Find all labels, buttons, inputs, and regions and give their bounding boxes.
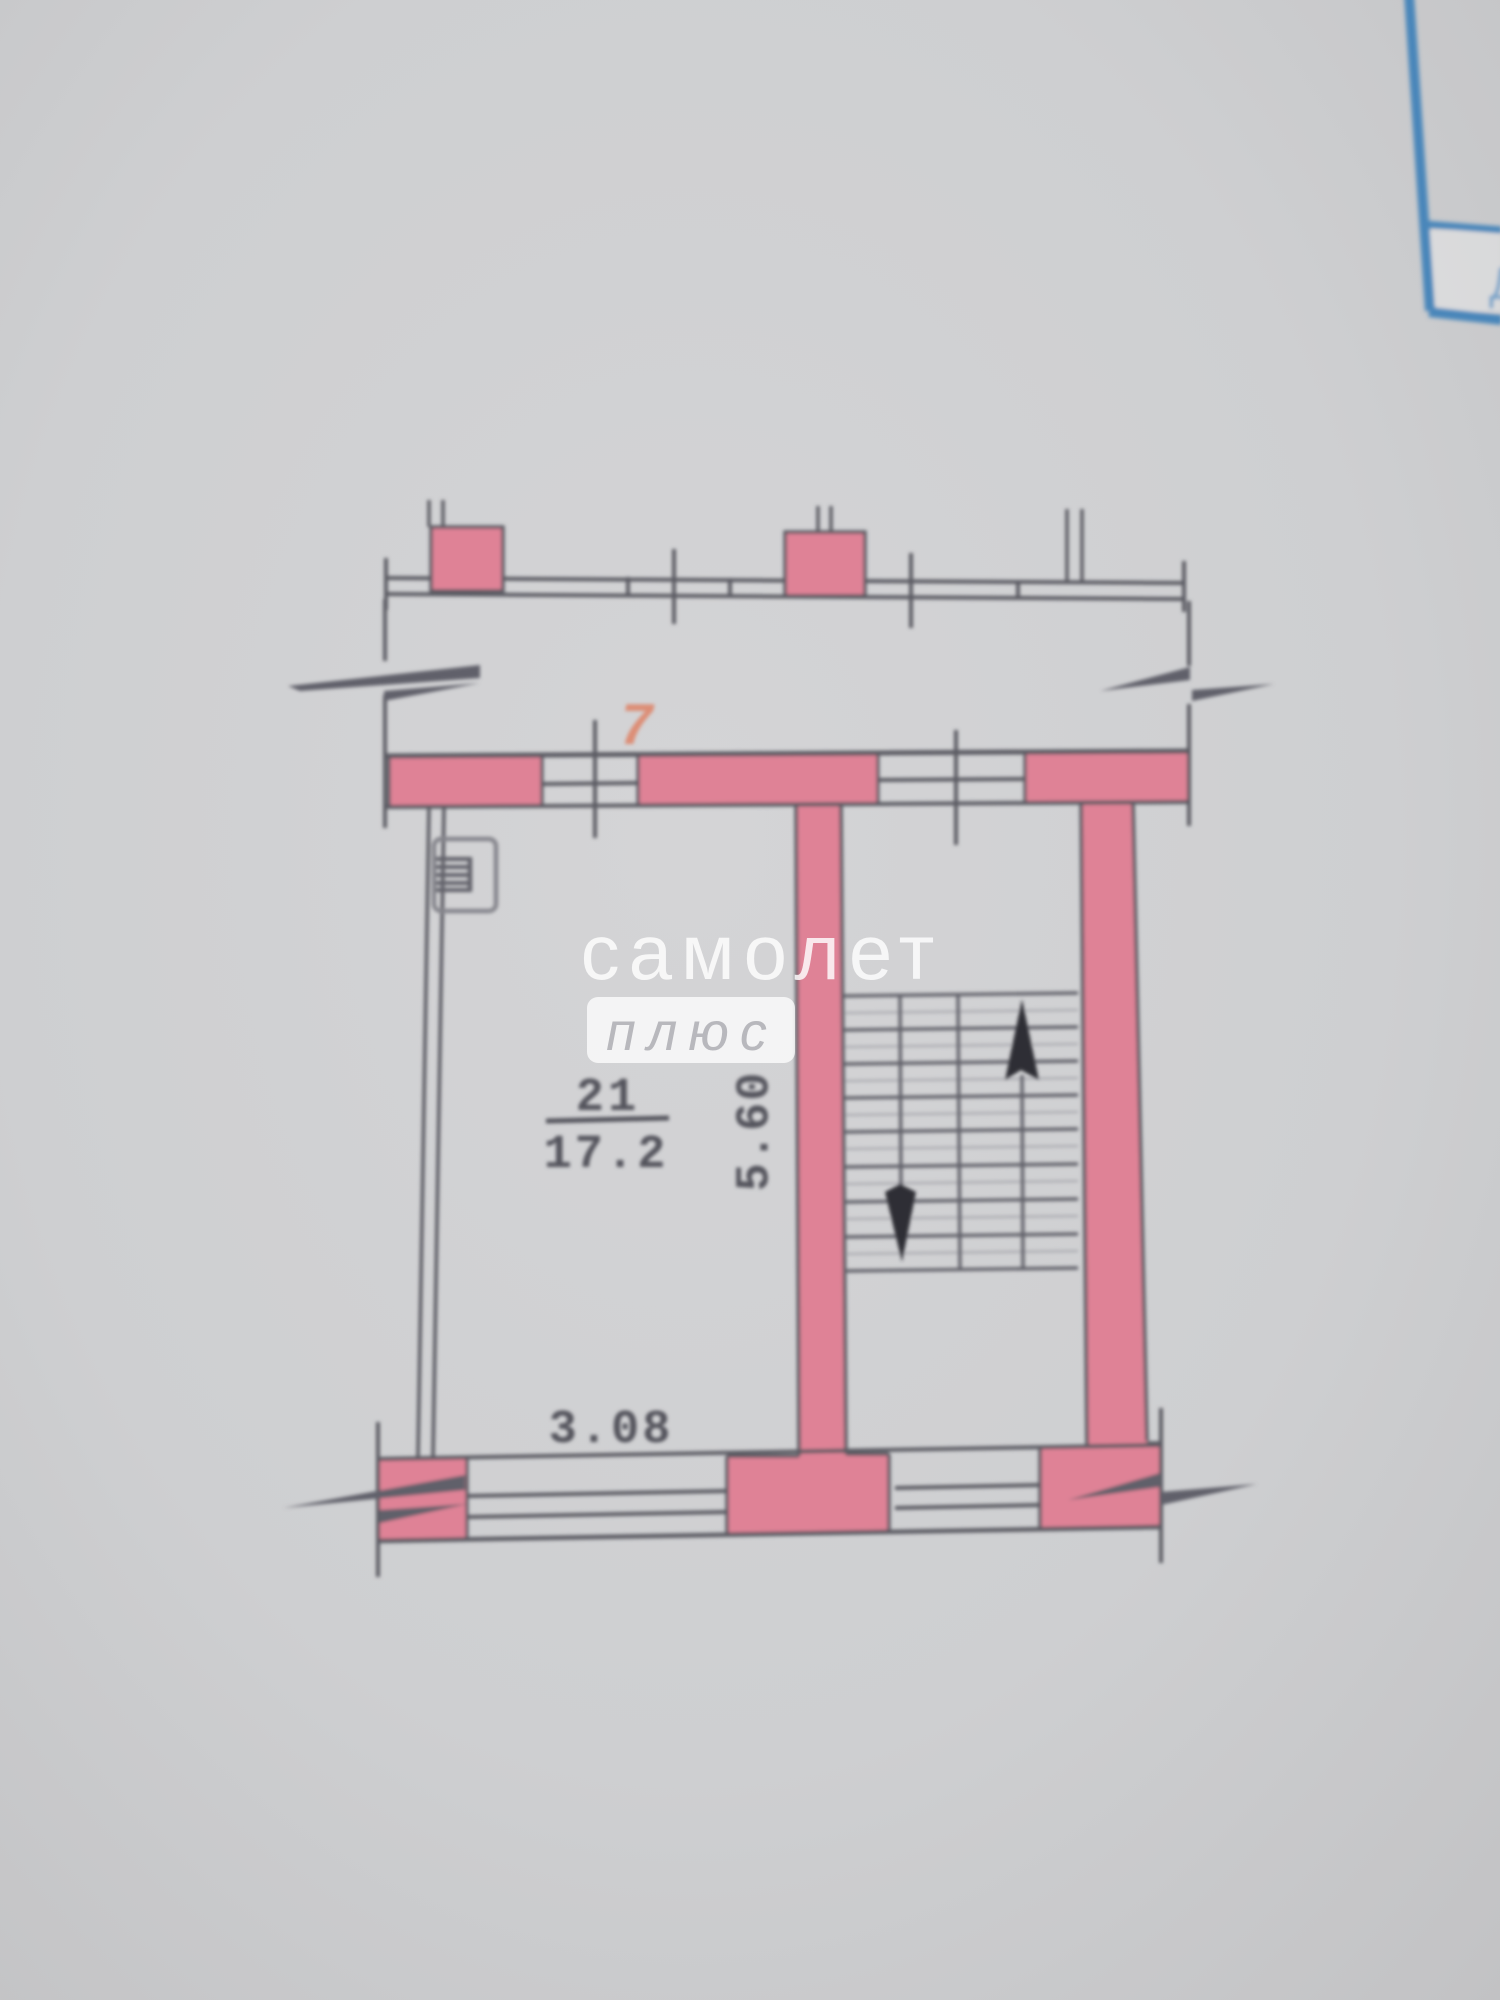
svg-text:плюс: плюс xyxy=(606,1002,778,1062)
svg-text:17.2: 17.2 xyxy=(544,1129,669,1182)
svg-text:3.08: 3.08 xyxy=(549,1404,674,1457)
svg-text:Д: Д xyxy=(1489,257,1500,309)
svg-text:самолет: самолет xyxy=(581,908,944,996)
svg-text:7: 7 xyxy=(618,695,655,763)
svg-text:5.60: 5.60 xyxy=(730,1071,783,1192)
